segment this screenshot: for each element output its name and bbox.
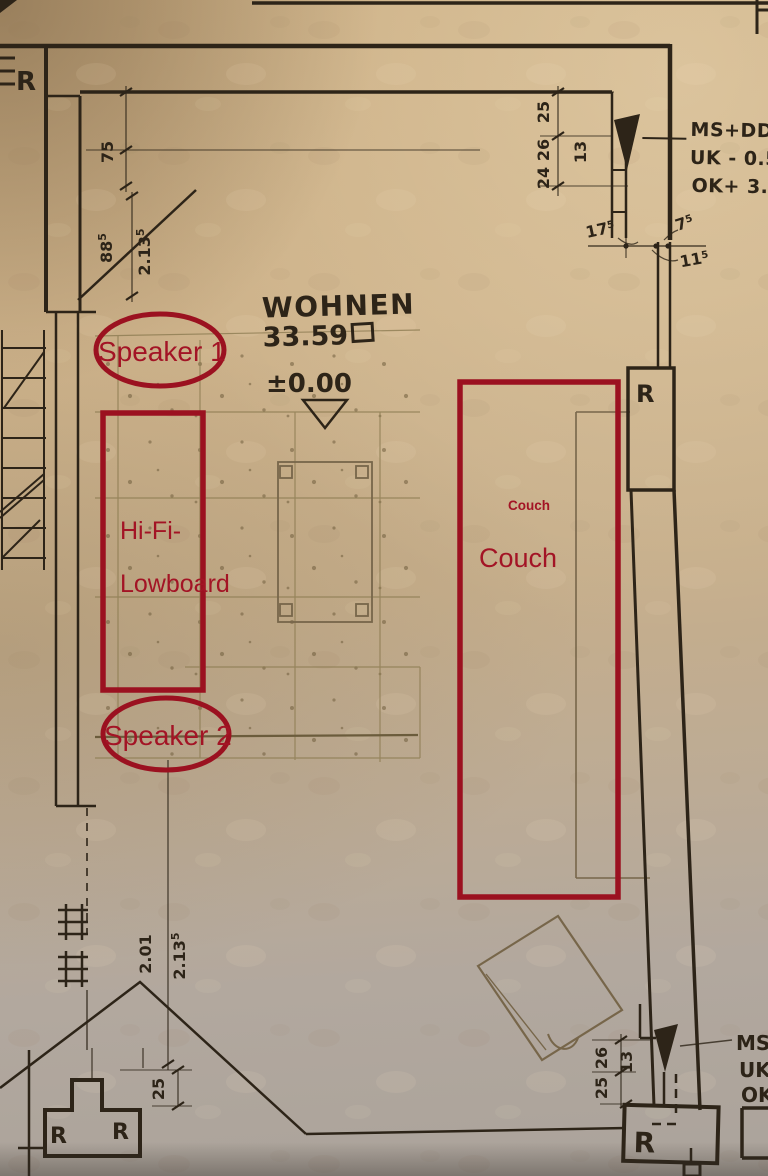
dim-25c-label: 25 <box>592 1077 611 1099</box>
couch-label-small: Couch <box>508 498 550 513</box>
dim-26-label: 26 <box>534 139 553 161</box>
radiator-top-left-label: R <box>16 67 36 97</box>
dim-26b-label: 26 <box>592 1047 611 1069</box>
speaker2-label: Speaker 2 <box>104 720 232 751</box>
floorplan-drawing: 75 885 2.135 WOHNEN 33.59 ±0.00 <box>0 0 768 1176</box>
dim-25-label: 25 <box>534 101 553 123</box>
level-note-ok: OK+ 3.50 <box>691 175 768 199</box>
chimney-r1-label: R <box>50 1124 67 1149</box>
hifi-label-line2: Lowboard <box>120 570 230 598</box>
dim-13-label: 13 <box>571 141 590 163</box>
floorplan-photo: 75 885 2.135 WOHNEN 33.59 ±0.00 <box>0 0 768 1176</box>
dim-201-label: 2.01 <box>136 934 155 973</box>
hifi-label-line1: Hi-Fi- <box>120 517 181 545</box>
room-name: WOHNEN <box>261 288 415 325</box>
level-note-uk-b: UK <box>739 1058 768 1082</box>
level-note-ok-b: OK <box>741 1083 768 1107</box>
room-area: 33.59 <box>262 320 348 353</box>
level-value: ±0.00 <box>266 369 352 399</box>
dim-13b-label: 13 <box>617 1051 636 1073</box>
level-note-ms-dd: MS+DD <box>690 119 768 142</box>
speaker1-label: Speaker 1 <box>98 336 226 367</box>
radiator-right-label: R <box>636 380 654 408</box>
chimney-r2-label: R <box>112 1120 129 1145</box>
level-note-ms-b: MS <box>736 1031 768 1055</box>
dim-75-label: 75 <box>98 141 117 163</box>
dim-25b-label: 25 <box>149 1078 168 1100</box>
dim-24-label: 24 <box>534 167 553 189</box>
couch-label-large: Couch <box>479 543 557 573</box>
level-notes-bottom: MS UK OK <box>736 1031 768 1107</box>
level-note-uk: UK - 0.50 <box>690 147 768 171</box>
radiator-bottom-label: R <box>633 1126 655 1160</box>
